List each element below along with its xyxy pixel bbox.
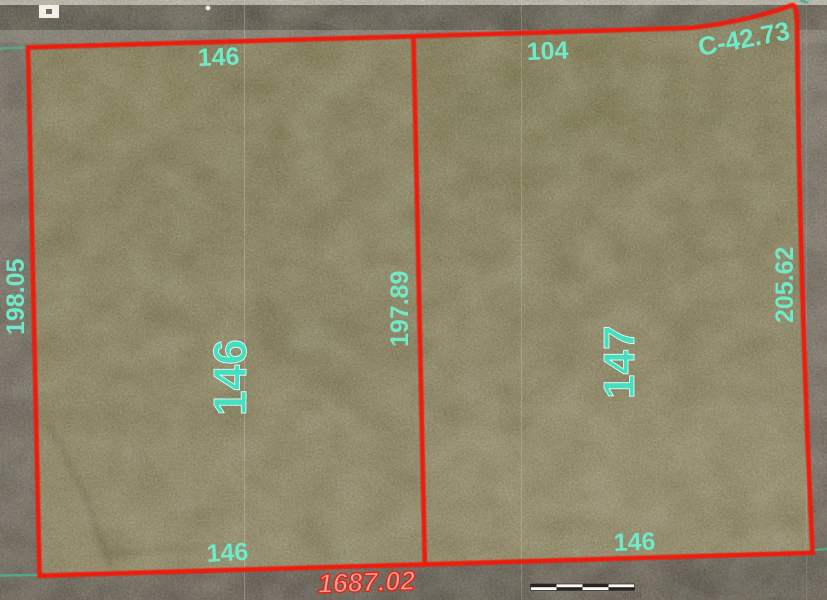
svg-text:104: 104 [526, 37, 569, 66]
svg-text:198.05: 198.05 [2, 258, 30, 335]
svg-text:205.62: 205.62 [771, 247, 799, 323]
svg-text:1687.02: 1687.02 [317, 566, 416, 599]
svg-text:0: 0 [580, 591, 585, 600]
svg-text:146: 146 [204, 339, 256, 416]
svg-text:146: 146 [197, 43, 240, 72]
svg-text:147: 147 [595, 326, 644, 399]
svg-text:400ft: 400ft [622, 591, 643, 600]
svg-text:146: 146 [613, 528, 656, 557]
svg-text:197.89: 197.89 [386, 271, 414, 347]
svg-text:146: 146 [206, 538, 249, 568]
